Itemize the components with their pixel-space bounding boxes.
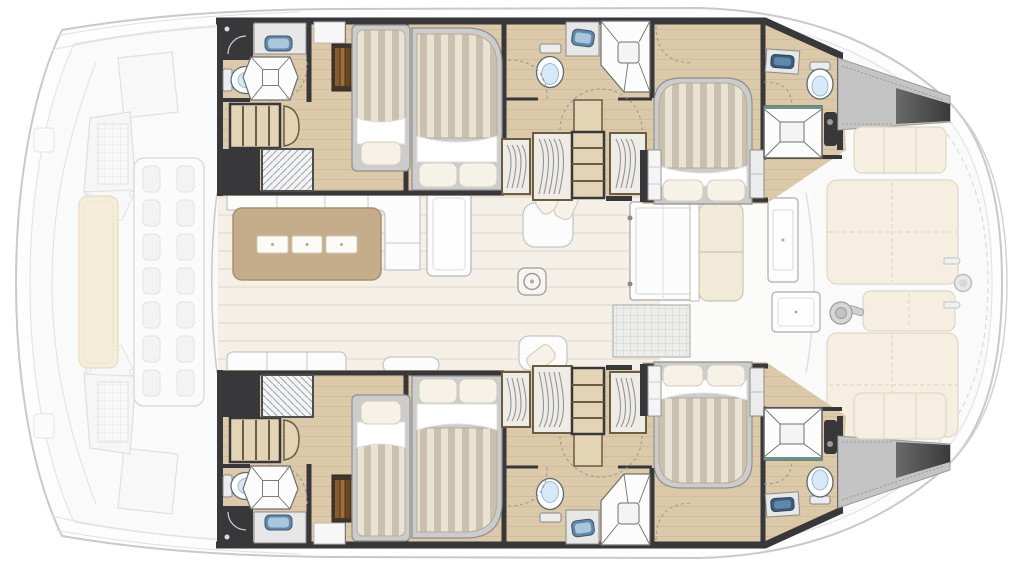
sideboard bbox=[427, 192, 471, 276]
hanging-locker bbox=[502, 139, 530, 194]
bow-locker-top bbox=[34, 128, 54, 152]
stairs-landing bbox=[574, 100, 602, 132]
placemats bbox=[257, 236, 357, 253]
transom-fitting-center bbox=[959, 279, 967, 287]
pillow bbox=[707, 180, 745, 201]
cockpit-bench bbox=[690, 203, 743, 301]
nightstand-left bbox=[640, 150, 661, 202]
island-bed bbox=[654, 78, 752, 204]
pillow bbox=[459, 163, 497, 187]
shower-pan bbox=[764, 106, 822, 158]
companionway-steps-forward bbox=[230, 104, 299, 148]
companionway-stairs bbox=[572, 132, 604, 198]
transom-latch-top bbox=[944, 258, 960, 264]
saloon bbox=[212, 184, 660, 378]
cockpit-table bbox=[768, 198, 798, 282]
pillow bbox=[361, 142, 401, 165]
floor-hatch bbox=[518, 268, 546, 295]
quarter-bench bbox=[854, 127, 946, 173]
cockpit-console bbox=[772, 292, 820, 332]
hatched-cabinet bbox=[262, 149, 313, 191]
single-bed bbox=[352, 25, 410, 171]
double-bed-forward bbox=[412, 28, 502, 190]
transom-latch-bottom bbox=[944, 302, 960, 308]
bow-trampoline bbox=[134, 158, 204, 406]
toilet bbox=[537, 44, 564, 88]
forward-shelf bbox=[314, 22, 345, 43]
shower-fixture bbox=[824, 112, 837, 146]
foredeck-bench bbox=[79, 196, 118, 368]
sliding-glass-door bbox=[628, 202, 699, 300]
shower-pan bbox=[243, 57, 298, 100]
toilet bbox=[807, 62, 833, 99]
hanging-locker bbox=[533, 133, 572, 200]
pillow bbox=[663, 180, 703, 201]
bow-locker-bottom bbox=[34, 414, 54, 438]
nightstand-right bbox=[750, 150, 764, 198]
doormat bbox=[613, 305, 690, 357]
foredeck-panel-top bbox=[118, 52, 178, 118]
hull-storage-dark bbox=[219, 149, 260, 193]
catamaran-floor-plan bbox=[0, 0, 1024, 566]
pillow bbox=[419, 163, 457, 187]
foredeck-panel-bottom bbox=[118, 448, 178, 514]
